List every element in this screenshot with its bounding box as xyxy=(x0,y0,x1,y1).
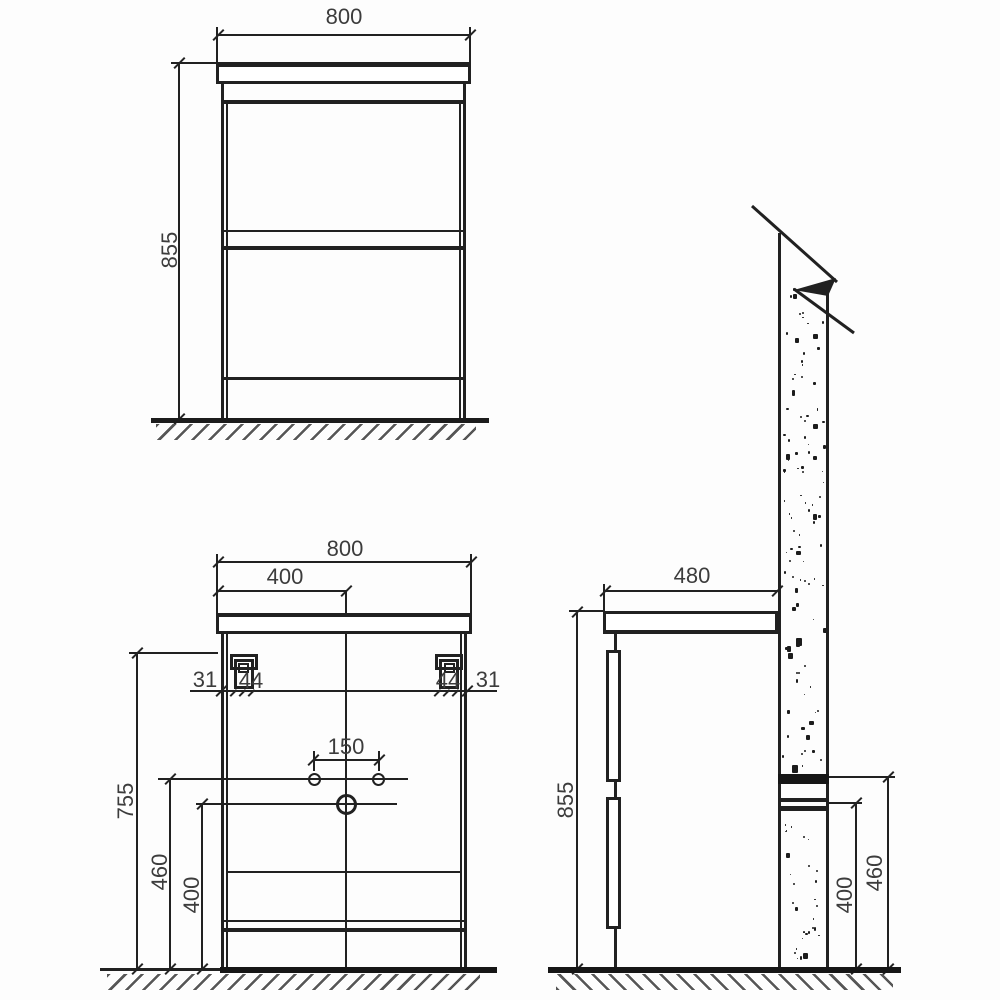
dim-label-height: 855 xyxy=(555,770,577,830)
ground-line xyxy=(151,418,489,423)
kick-line xyxy=(221,928,467,932)
side-inner-line xyxy=(226,104,228,419)
top-rail-line xyxy=(221,100,466,104)
dim-label-drain-height: 400 xyxy=(834,865,856,925)
ground-hatch xyxy=(556,974,893,990)
dim-label-depth: 480 xyxy=(657,565,727,587)
dim-label-left-bracket: 44 xyxy=(234,670,268,692)
drain-hole xyxy=(336,794,357,815)
dim-line-width xyxy=(218,34,471,36)
cabinet-body xyxy=(221,84,466,420)
side-inner-line xyxy=(226,634,228,968)
dim-label-right-offset: 31 xyxy=(471,669,505,691)
countertop xyxy=(216,613,472,634)
dim-line-depth xyxy=(605,590,777,592)
dim-label-width: 800 xyxy=(309,6,379,28)
ground-hatch xyxy=(156,424,476,440)
dim-line-supply-height xyxy=(887,777,889,970)
kick-line xyxy=(221,920,467,922)
dim-label-faucet-spacing: 150 xyxy=(311,736,381,758)
dim-label-width: 800 xyxy=(310,538,380,560)
drawer-front-lower xyxy=(606,797,621,929)
dim-label-height: 855 xyxy=(159,220,181,280)
dim-label-supply-height: 460 xyxy=(149,842,171,902)
wall-pipe-line xyxy=(778,798,829,802)
dim-label-right-bracket: 44 xyxy=(431,670,465,692)
ground-line xyxy=(548,967,901,973)
drawer-divider-line xyxy=(221,246,466,250)
water-supply-hole-left xyxy=(308,773,321,786)
technical-drawing-canvas: 800 855 800 400 xyxy=(0,0,1000,1000)
drain-level-line xyxy=(196,803,397,805)
dim-extension-line xyxy=(603,584,605,611)
shelf-line xyxy=(226,871,462,873)
countertop xyxy=(216,62,471,84)
ground-hatch xyxy=(107,974,480,990)
dim-line-faucet xyxy=(313,759,380,761)
dim-extension-line xyxy=(129,652,218,654)
water-supply-hole-right xyxy=(372,773,385,786)
dim-line-width xyxy=(218,561,472,563)
bottom-rail-line xyxy=(221,377,466,380)
ground-line xyxy=(100,968,220,971)
dim-extension-line xyxy=(216,27,218,62)
wall-pipe-line xyxy=(778,806,829,811)
dim-label-left-offset: 31 xyxy=(188,669,222,691)
countertop-side xyxy=(603,611,778,634)
dim-label-drain-height: 400 xyxy=(181,865,203,925)
dim-label-supply-height: 460 xyxy=(864,843,886,903)
dim-label-center: 400 xyxy=(250,566,320,588)
side-inner-line xyxy=(459,104,461,419)
wall-break-symbol xyxy=(735,195,870,345)
supply-level-line xyxy=(158,778,408,780)
wall-speckles xyxy=(781,288,826,968)
drawer-front-upper xyxy=(606,650,621,782)
dim-line-center xyxy=(218,590,347,592)
dim-extension-line xyxy=(569,610,603,612)
wall-edge-right xyxy=(826,283,829,970)
ground-line xyxy=(220,967,497,973)
wall-pipe-band xyxy=(778,774,829,784)
dim-label-bracket-height: 755 xyxy=(115,771,137,831)
drawer-divider-line xyxy=(221,230,466,232)
